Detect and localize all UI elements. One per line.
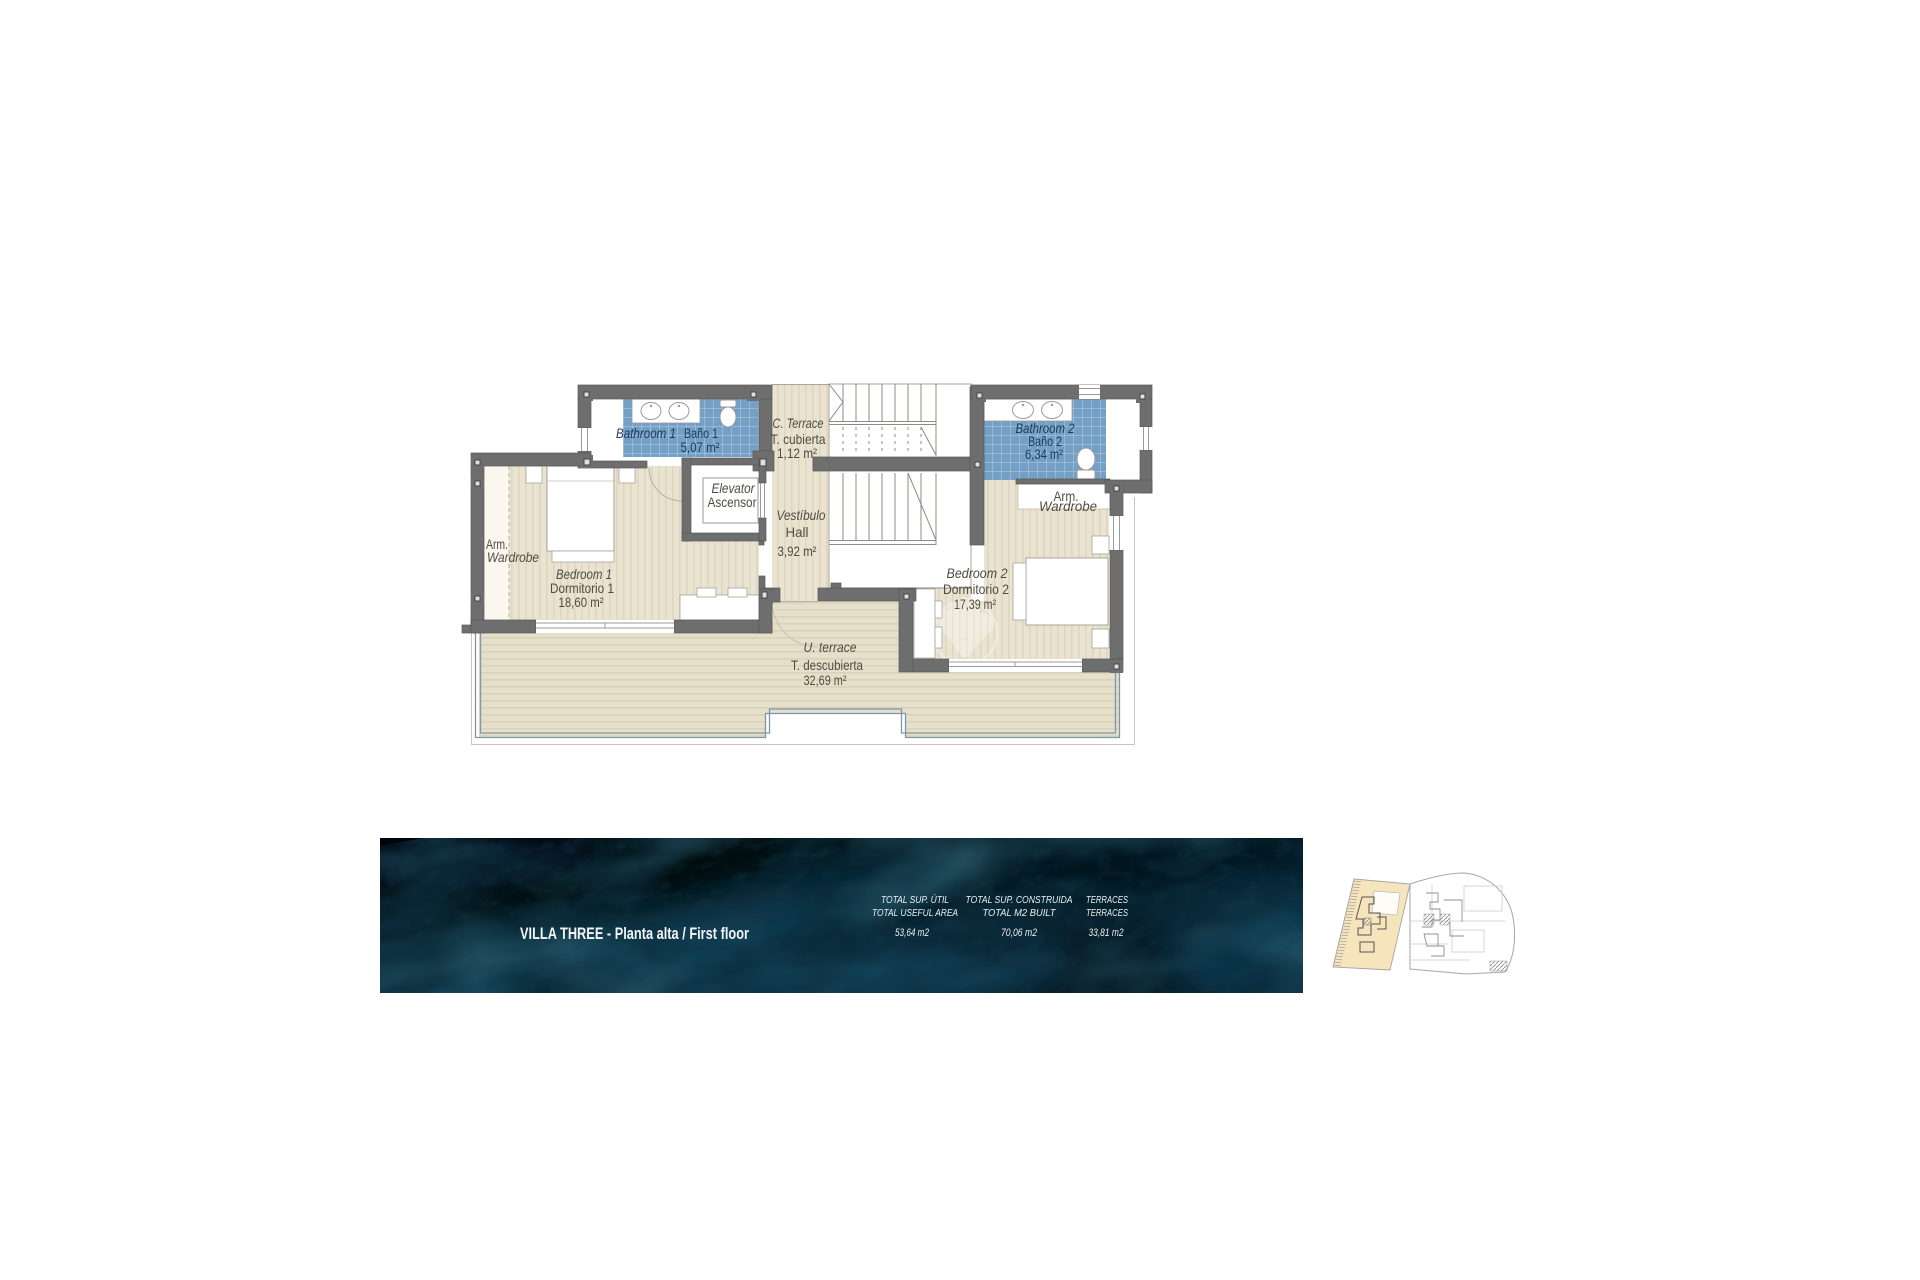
svg-text:U. terrace: U. terrace xyxy=(804,639,857,655)
svg-text:T. descubierta: T. descubierta xyxy=(791,657,863,673)
svg-text:70,06 m2: 70,06 m2 xyxy=(1001,927,1037,939)
svg-text:53,64 m2: 53,64 m2 xyxy=(895,927,929,939)
svg-text:TOTAL SUP. CONSTRUIDA: TOTAL SUP. CONSTRUIDA xyxy=(966,895,1073,906)
svg-text:TOTAL M2 BUILT: TOTAL M2 BUILT xyxy=(983,908,1057,919)
svg-text:Ascensor: Ascensor xyxy=(708,494,757,510)
svg-text:Dormitorio 2: Dormitorio 2 xyxy=(943,581,1009,597)
svg-text:Bathroom 1: Bathroom 1 xyxy=(616,425,676,441)
svg-text:Vestíbulo: Vestíbulo xyxy=(777,507,826,523)
svg-text:Bedroom 2: Bedroom 2 xyxy=(947,565,1008,581)
svg-text:18,60 m²: 18,60 m² xyxy=(559,594,604,610)
svg-text:17,39 m²: 17,39 m² xyxy=(954,596,996,612)
svg-text:5,07 m²: 5,07 m² xyxy=(681,439,720,455)
svg-text:C. Terrace: C. Terrace xyxy=(773,415,824,431)
svg-text:32,69 m²: 32,69 m² xyxy=(804,672,847,688)
svg-text:VILLA THREE - Planta alta / F: VILLA THREE - Planta alta / First floor xyxy=(520,924,749,943)
svg-text:TERRACES: TERRACES xyxy=(1086,908,1128,919)
svg-text:6,34 m²: 6,34 m² xyxy=(1025,446,1063,462)
svg-text:33,81 m2: 33,81 m2 xyxy=(1089,927,1124,939)
svg-text:3,92 m²: 3,92 m² xyxy=(778,543,817,559)
svg-text:Hall: Hall xyxy=(786,524,809,540)
svg-text:1,12 m²: 1,12 m² xyxy=(777,445,817,461)
svg-text:TOTAL USEFUL AREA: TOTAL USEFUL AREA xyxy=(872,908,958,919)
svg-text:Wardrobe: Wardrobe xyxy=(487,549,539,565)
svg-text:Wardrobe: Wardrobe xyxy=(1039,498,1097,514)
svg-text:TOTAL SUP. ÚTIL: TOTAL SUP. ÚTIL xyxy=(881,893,949,906)
svg-text:TERRACES: TERRACES xyxy=(1086,895,1128,906)
